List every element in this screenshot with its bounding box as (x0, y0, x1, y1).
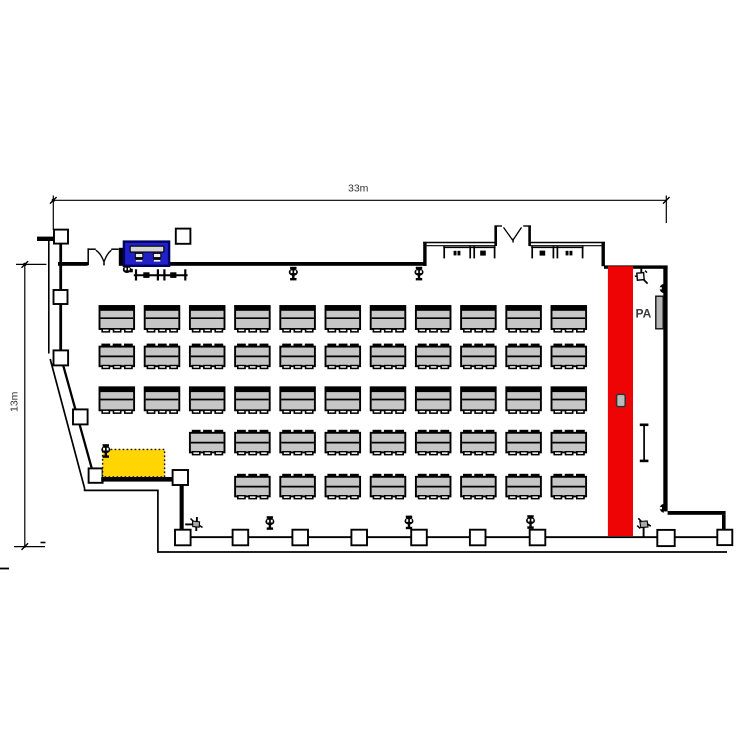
svg-text:13m: 13m (9, 391, 21, 412)
svg-text:PA: PA (636, 307, 652, 321)
svg-text:33m: 33m (348, 183, 369, 195)
